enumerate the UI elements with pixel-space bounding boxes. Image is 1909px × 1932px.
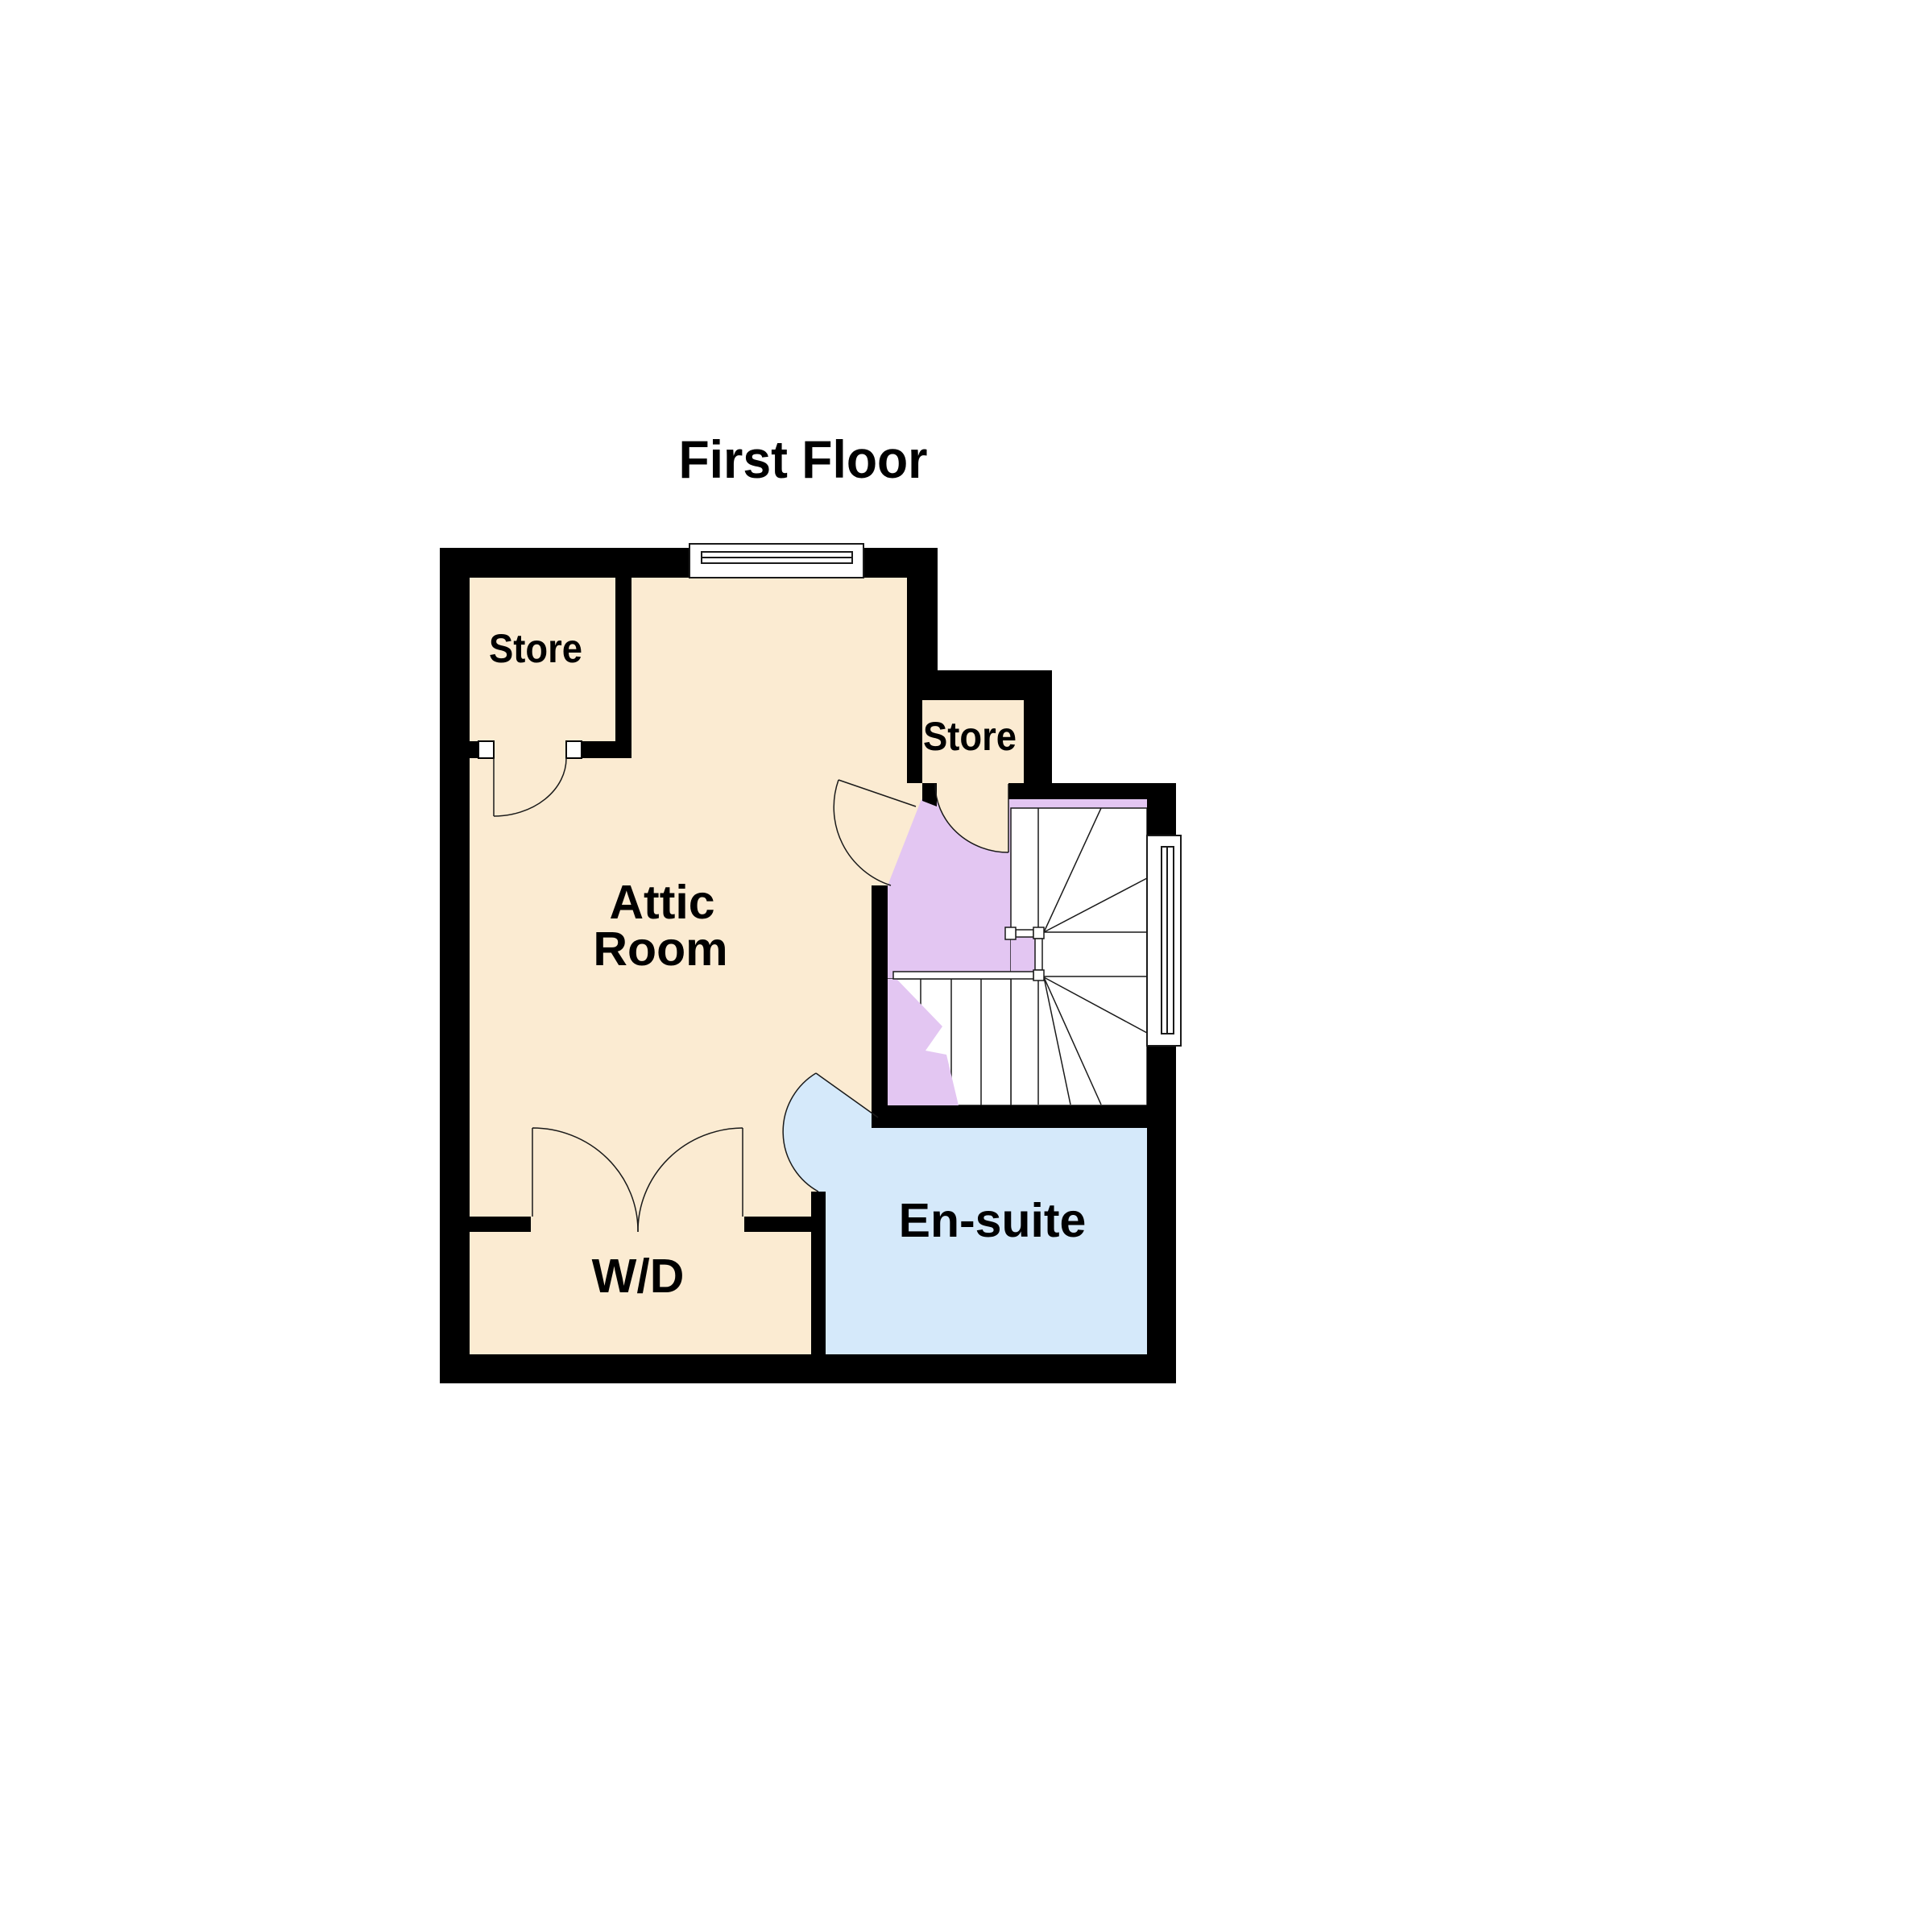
svg-text:Room: Room <box>593 922 727 976</box>
svg-text:W/D: W/D <box>592 1250 685 1303</box>
svg-text:Store: Store <box>489 626 582 671</box>
svg-text:Attic: Attic <box>609 876 714 929</box>
svg-text:Store: Store <box>923 714 1017 759</box>
svg-text:First Floor: First Floor <box>679 429 928 489</box>
svg-text:En-suite: En-suite <box>899 1194 1087 1247</box>
